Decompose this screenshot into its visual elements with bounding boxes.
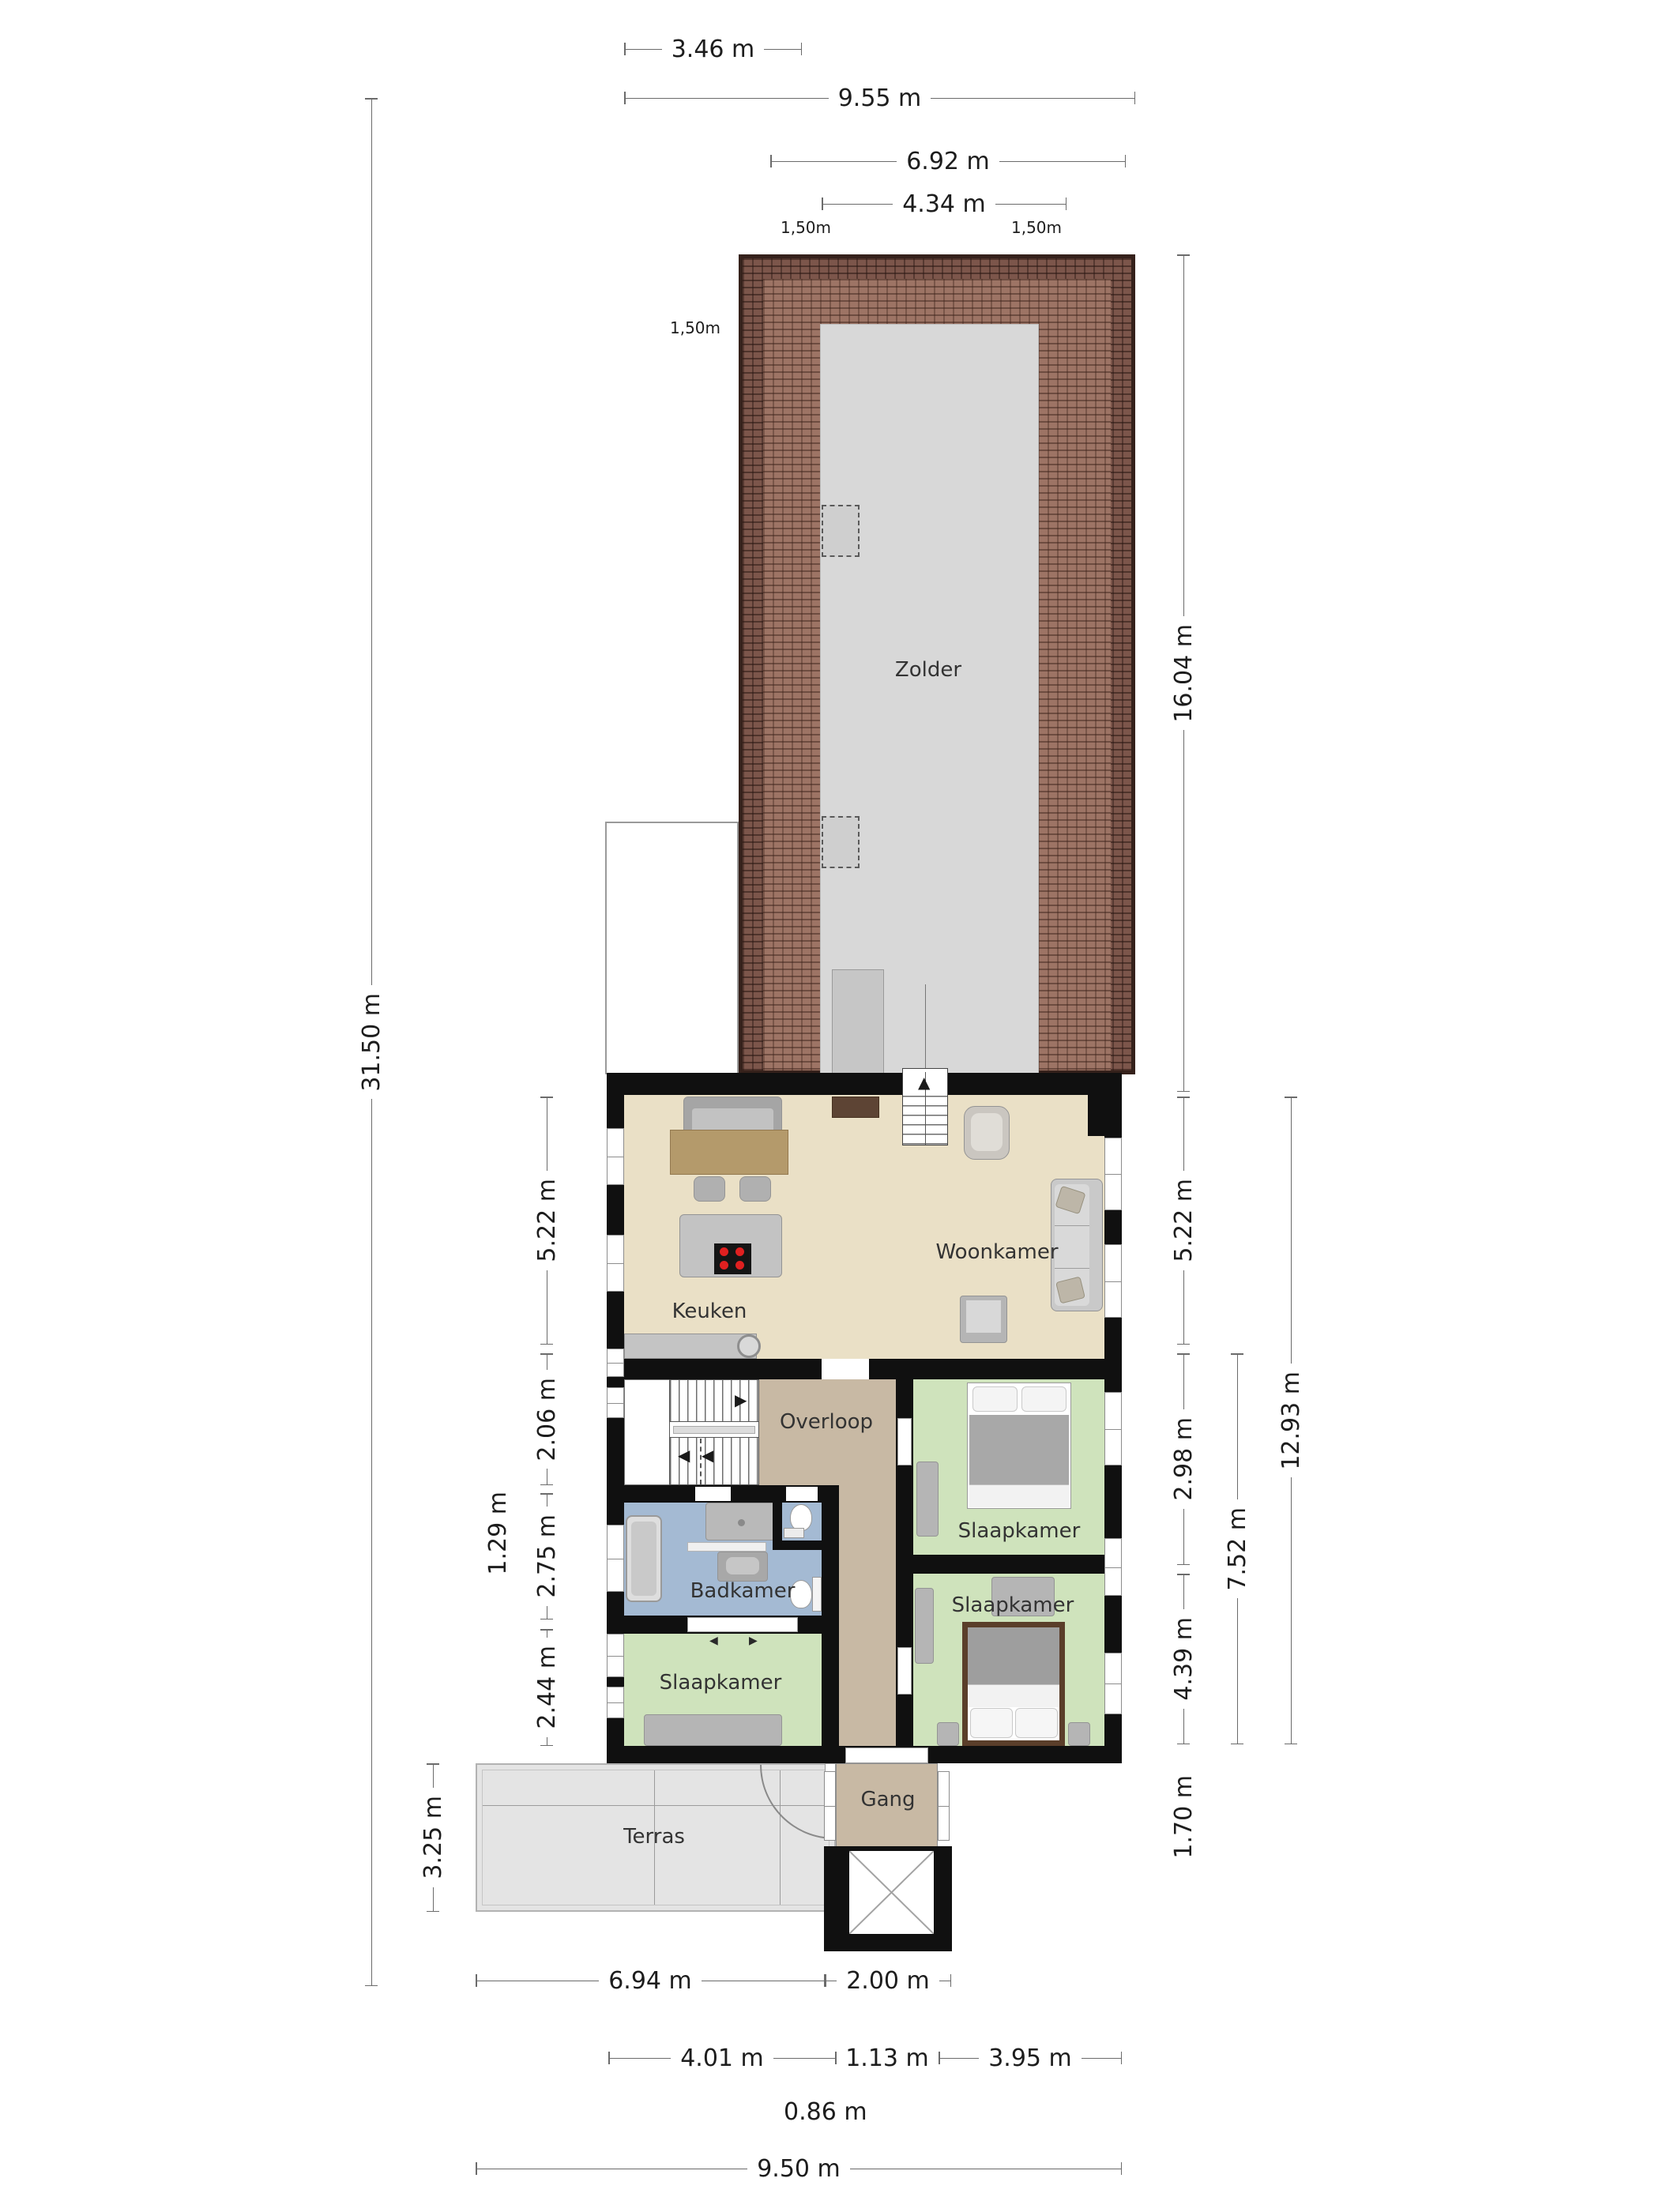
window-gang-right: [938, 1771, 950, 1841]
roof-window: [822, 816, 860, 868]
door-living-landing: [822, 1360, 869, 1379]
window-bedroom-left-1: [607, 1634, 624, 1677]
door-bedroom-bottom-right: [897, 1647, 912, 1695]
window-bedroom-br-1: [1104, 1538, 1122, 1596]
door-bedroom-top-right: [897, 1418, 912, 1465]
extension-outline: [605, 822, 739, 1074]
room-label-overloop: Overloop: [780, 1410, 873, 1434]
slide-arrow-right-icon: ▶: [749, 1635, 758, 1646]
dining-chair: [739, 1176, 771, 1202]
wall-corner-jog: [1088, 1095, 1122, 1136]
attic-stairs-rail: [925, 984, 926, 1068]
room-label-slaapkamer-onder: Slaapkamer: [952, 1593, 1074, 1617]
window-gang-left: [824, 1771, 836, 1841]
door-landing-gang: [845, 1747, 928, 1763]
dim-bottom-6-94: 6.94 m: [476, 1969, 825, 1992]
door-wc: [786, 1487, 818, 1501]
sideboard: [832, 1097, 879, 1118]
door-bath-bedroom-band: [687, 1617, 798, 1632]
dim-left-total: 31.50 m: [359, 98, 383, 1986]
dim-left-5-22: 5.22 m: [535, 1097, 559, 1345]
dim-right-4-39: 4.39 m: [1172, 1574, 1195, 1744]
window-bathroom: [607, 1525, 624, 1592]
room-label-keuken: Keuken: [672, 1300, 747, 1323]
bed-bottom-right: [962, 1622, 1065, 1746]
bed-top-right: [967, 1382, 1071, 1509]
dim-right-7-52: 7.52 m: [1225, 1353, 1249, 1744]
vanity-counter: [687, 1542, 766, 1552]
kitchen-island: [679, 1214, 782, 1277]
window-bedroom-tr: [1104, 1392, 1122, 1465]
dim-right-12-93: 12.93 m: [1279, 1097, 1303, 1744]
dim-top-3: 6.92 m: [770, 149, 1126, 173]
nightstand: [937, 1722, 959, 1746]
door-bathroom: [695, 1487, 731, 1501]
stairs-arrow-left-icon: ◀: [702, 1447, 713, 1463]
dim-bottom-1-13: 1.13 m: [836, 2046, 939, 2070]
dim-bottom-2-00: 2.00 m: [825, 1969, 951, 1992]
window-stairwell-1: [607, 1349, 624, 1377]
dining-chair: [694, 1176, 725, 1202]
elevator-car: [849, 1851, 934, 1934]
dim-top-4: 4.34 m: [822, 192, 1066, 216]
landing-floor-narrow: [839, 1503, 896, 1763]
nightstand: [1068, 1722, 1090, 1746]
window-kitchen-2: [607, 1235, 624, 1292]
dim-right-1-70: 1.70 m: [1172, 1767, 1195, 1846]
cooktop: [714, 1243, 751, 1274]
attic-stair-block: [832, 969, 884, 1074]
kitchen-sink: [737, 1334, 761, 1358]
dim-left-2-44: 2.44 m: [535, 1629, 559, 1746]
landing-floor-wide: [759, 1379, 896, 1503]
room-label-slaapkamer-links: Slaapkamer: [660, 1671, 782, 1695]
cabinet-bottom-right: [915, 1588, 934, 1664]
room-label-woonkamer: Woonkamer: [935, 1240, 1058, 1264]
dim-right-5-22: 5.22 m: [1172, 1097, 1195, 1345]
room-label-terras: Terras: [623, 1825, 685, 1849]
roof-window: [822, 505, 860, 557]
toilet-cistern: [812, 1577, 822, 1612]
dim-top-1: 3.46 m: [624, 37, 802, 61]
bathtub: [626, 1515, 662, 1602]
dim-bottom-4-01: 4.01 m: [608, 2046, 836, 2070]
window-living-2: [1104, 1244, 1122, 1318]
roof-annotation-right: 1,50m: [1011, 218, 1062, 237]
dim-left-3-25: 3.25 m: [421, 1763, 445, 1912]
tv-table: [960, 1296, 1007, 1343]
dim-left-2-06: 2.06 m: [535, 1353, 559, 1485]
bench-bedroom-left: [644, 1714, 782, 1746]
window-kitchen-1: [607, 1128, 624, 1185]
dim-bottom-0-86: 0.86 m: [774, 2100, 869, 2124]
dim-bottom-9-50: 9.50 m: [476, 2157, 1122, 2180]
elevator-shaft: [824, 1846, 952, 1951]
dim-bottom-3-95: 3.95 m: [939, 2046, 1122, 2070]
room-label-badkamer: Badkamer: [690, 1579, 796, 1603]
wall-bedrooms-divider: [913, 1555, 1122, 1574]
room-label-gang: Gang: [860, 1788, 915, 1811]
dim-left-1-29: 1.29 m: [486, 1484, 510, 1571]
dim-top-2: 9.55 m: [624, 86, 1135, 110]
dim-left-2-75: 2.75 m: [535, 1493, 559, 1619]
roof-annotation-left: 1,50m: [781, 218, 831, 237]
sofa-right: [1051, 1179, 1103, 1311]
roof-annotation-side: 1,50m: [670, 318, 720, 337]
wall-top: [607, 1073, 1122, 1095]
stairs-arrow-right-icon: ▶: [735, 1392, 747, 1408]
stairs-arrow-left-icon: ◀: [678, 1447, 690, 1463]
wall-wc-horiz: [773, 1540, 822, 1550]
window-bedroom-left-2: [607, 1687, 624, 1718]
wall-living-bottom-b: [869, 1359, 1122, 1379]
window-bedroom-br-2: [1104, 1653, 1122, 1714]
wall-living-bottom-a: [607, 1359, 822, 1379]
slide-arrow-left-icon: ◀: [709, 1635, 718, 1646]
floorplan-canvas: Zolder: [0, 0, 1659, 2212]
shower: [705, 1503, 777, 1540]
window-stairwell-2: [607, 1387, 624, 1418]
attic-floor: [820, 324, 1039, 1074]
dining-table: [670, 1130, 788, 1175]
dim-right-2-98: 2.98 m: [1172, 1353, 1195, 1565]
elevator-x-icon: [849, 1851, 934, 1934]
wardrobe-top-right: [916, 1461, 939, 1537]
room-label-zolder: Zolder: [895, 658, 961, 682]
armchair: [964, 1106, 1010, 1160]
bathroom-sink: [717, 1552, 768, 1582]
stairs-up-arrow-icon: ▲: [918, 1074, 930, 1090]
dim-right-16-04: 16.04 m: [1172, 254, 1195, 1092]
wc-toilet: [790, 1504, 812, 1531]
wc-sink: [784, 1528, 804, 1538]
window-living-1: [1104, 1138, 1122, 1210]
room-label-slaapkamer-boven: Slaapkamer: [958, 1519, 1081, 1543]
